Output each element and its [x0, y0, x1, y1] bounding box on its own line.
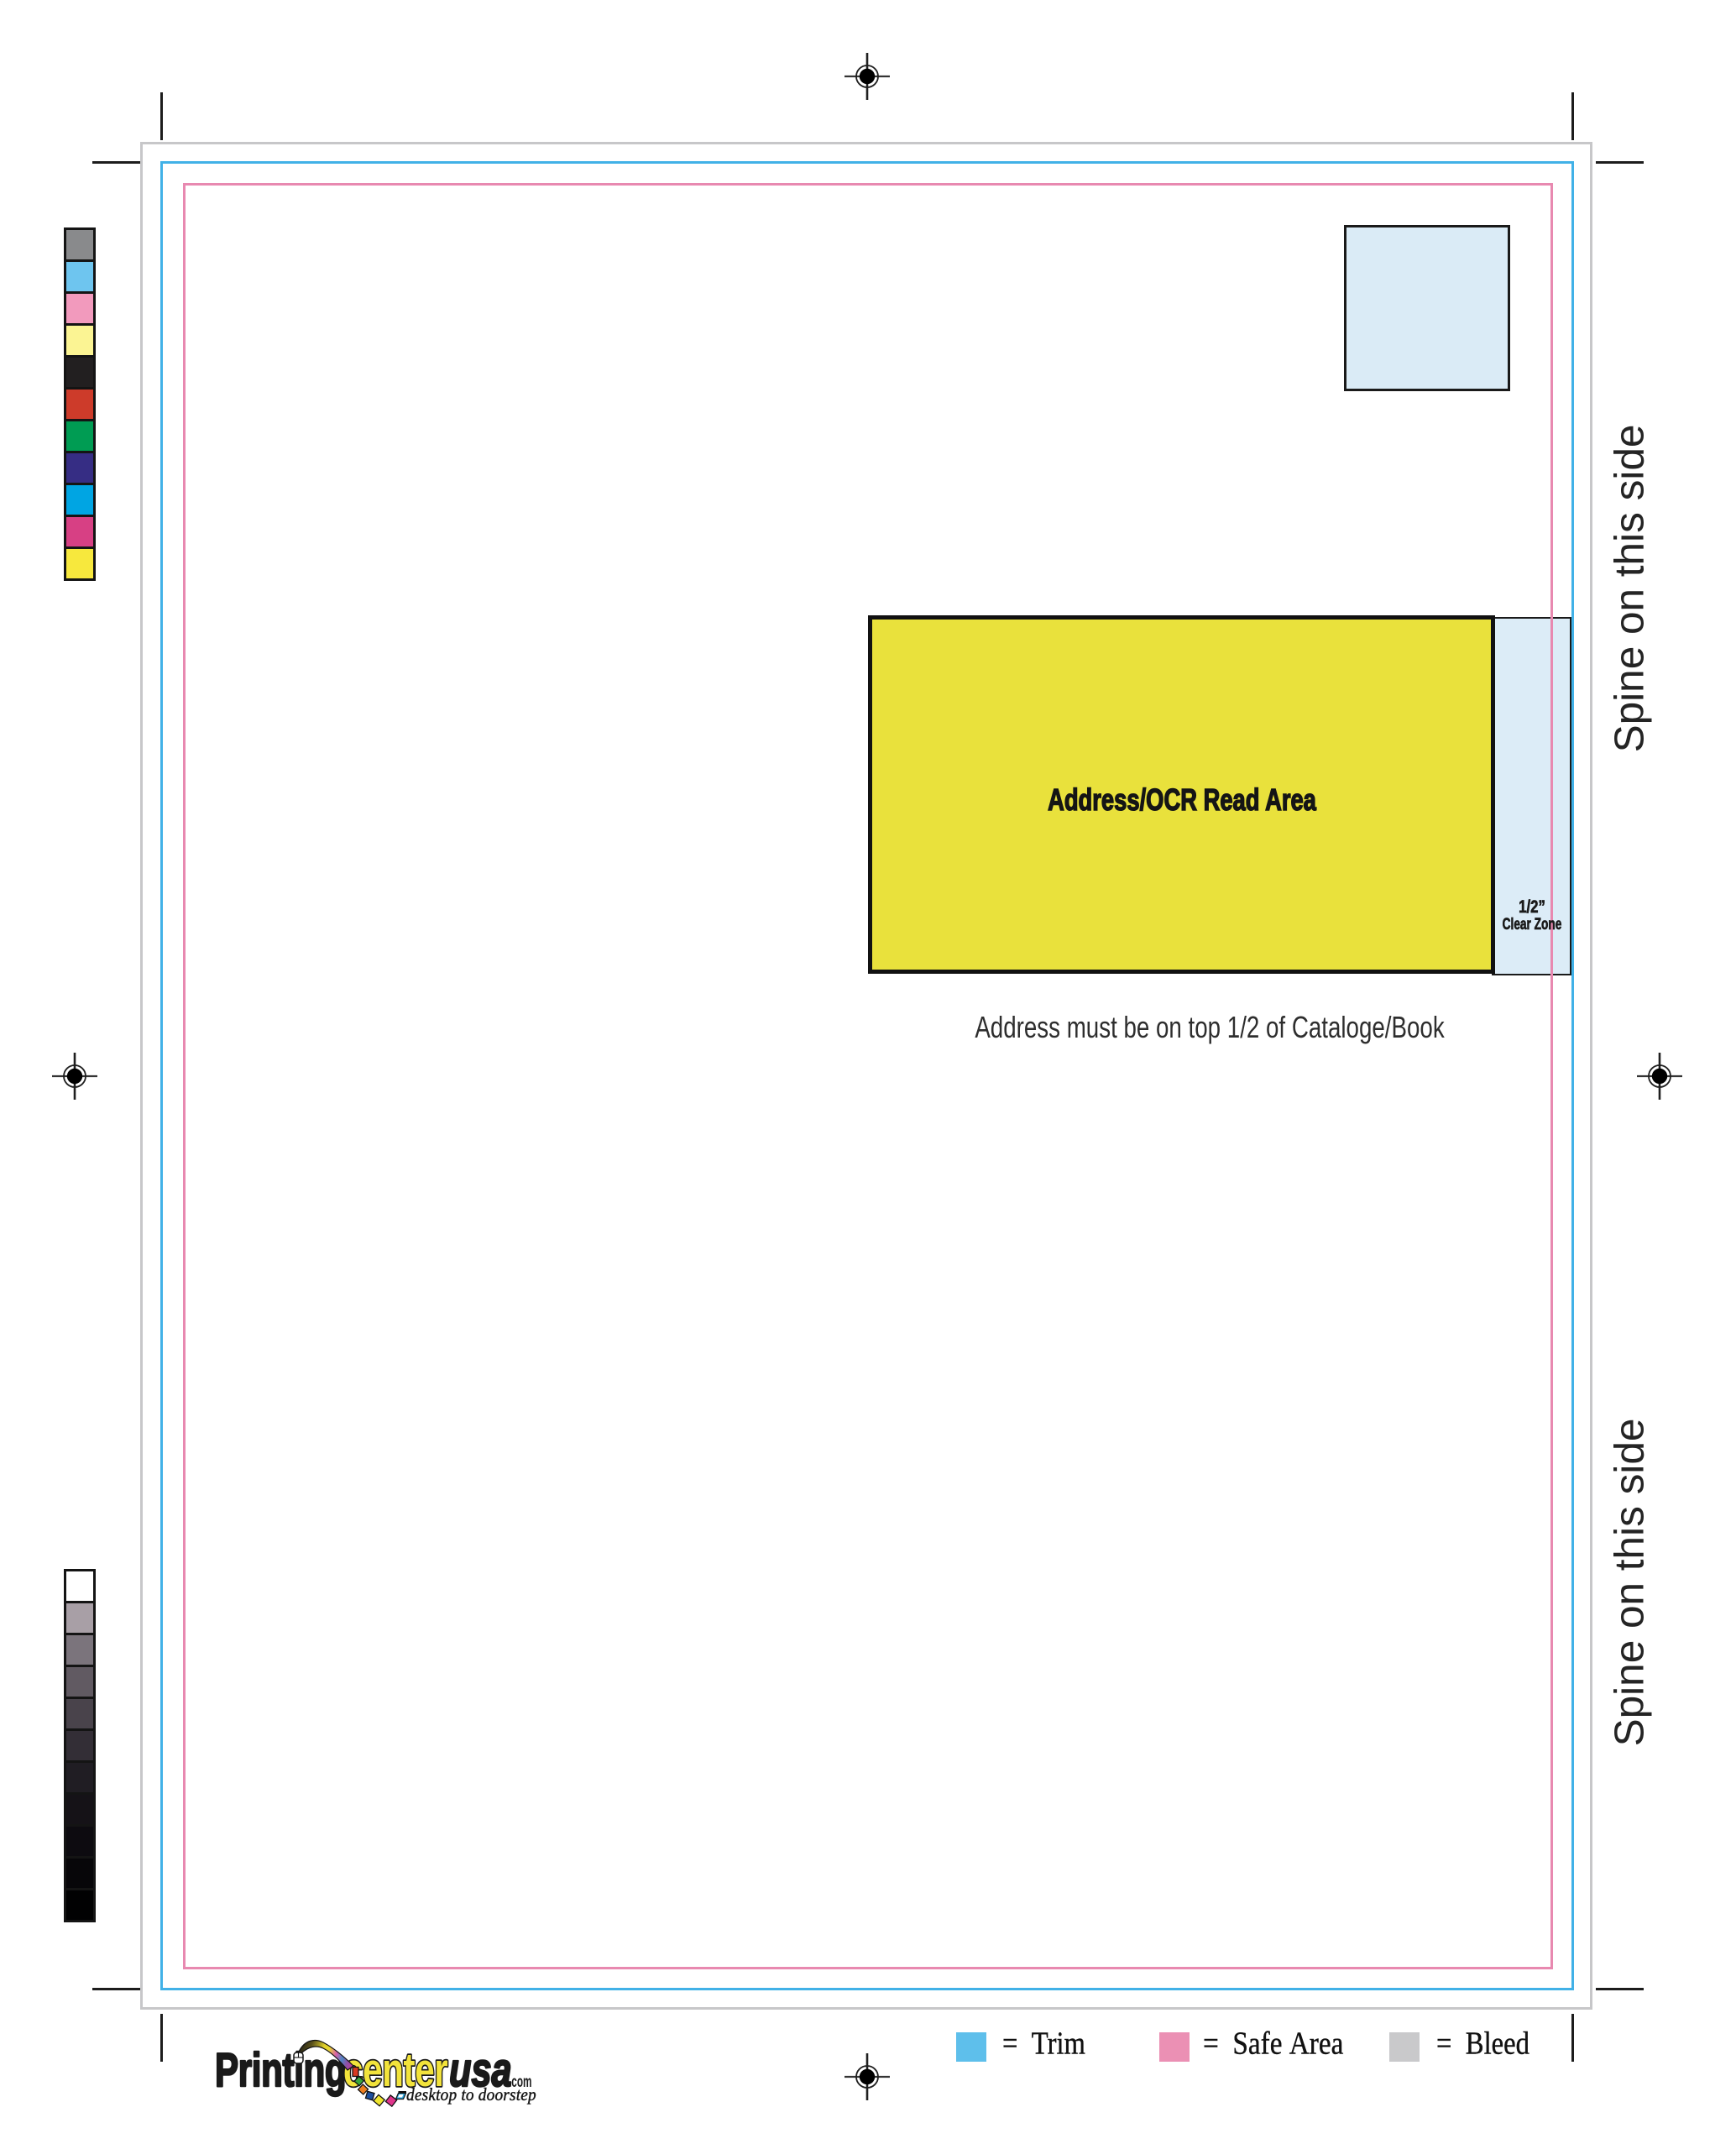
svg-text:Printing: Printing [215, 2043, 346, 2097]
svg-text:desktop to doorstep: desktop to doorstep [406, 2085, 536, 2105]
